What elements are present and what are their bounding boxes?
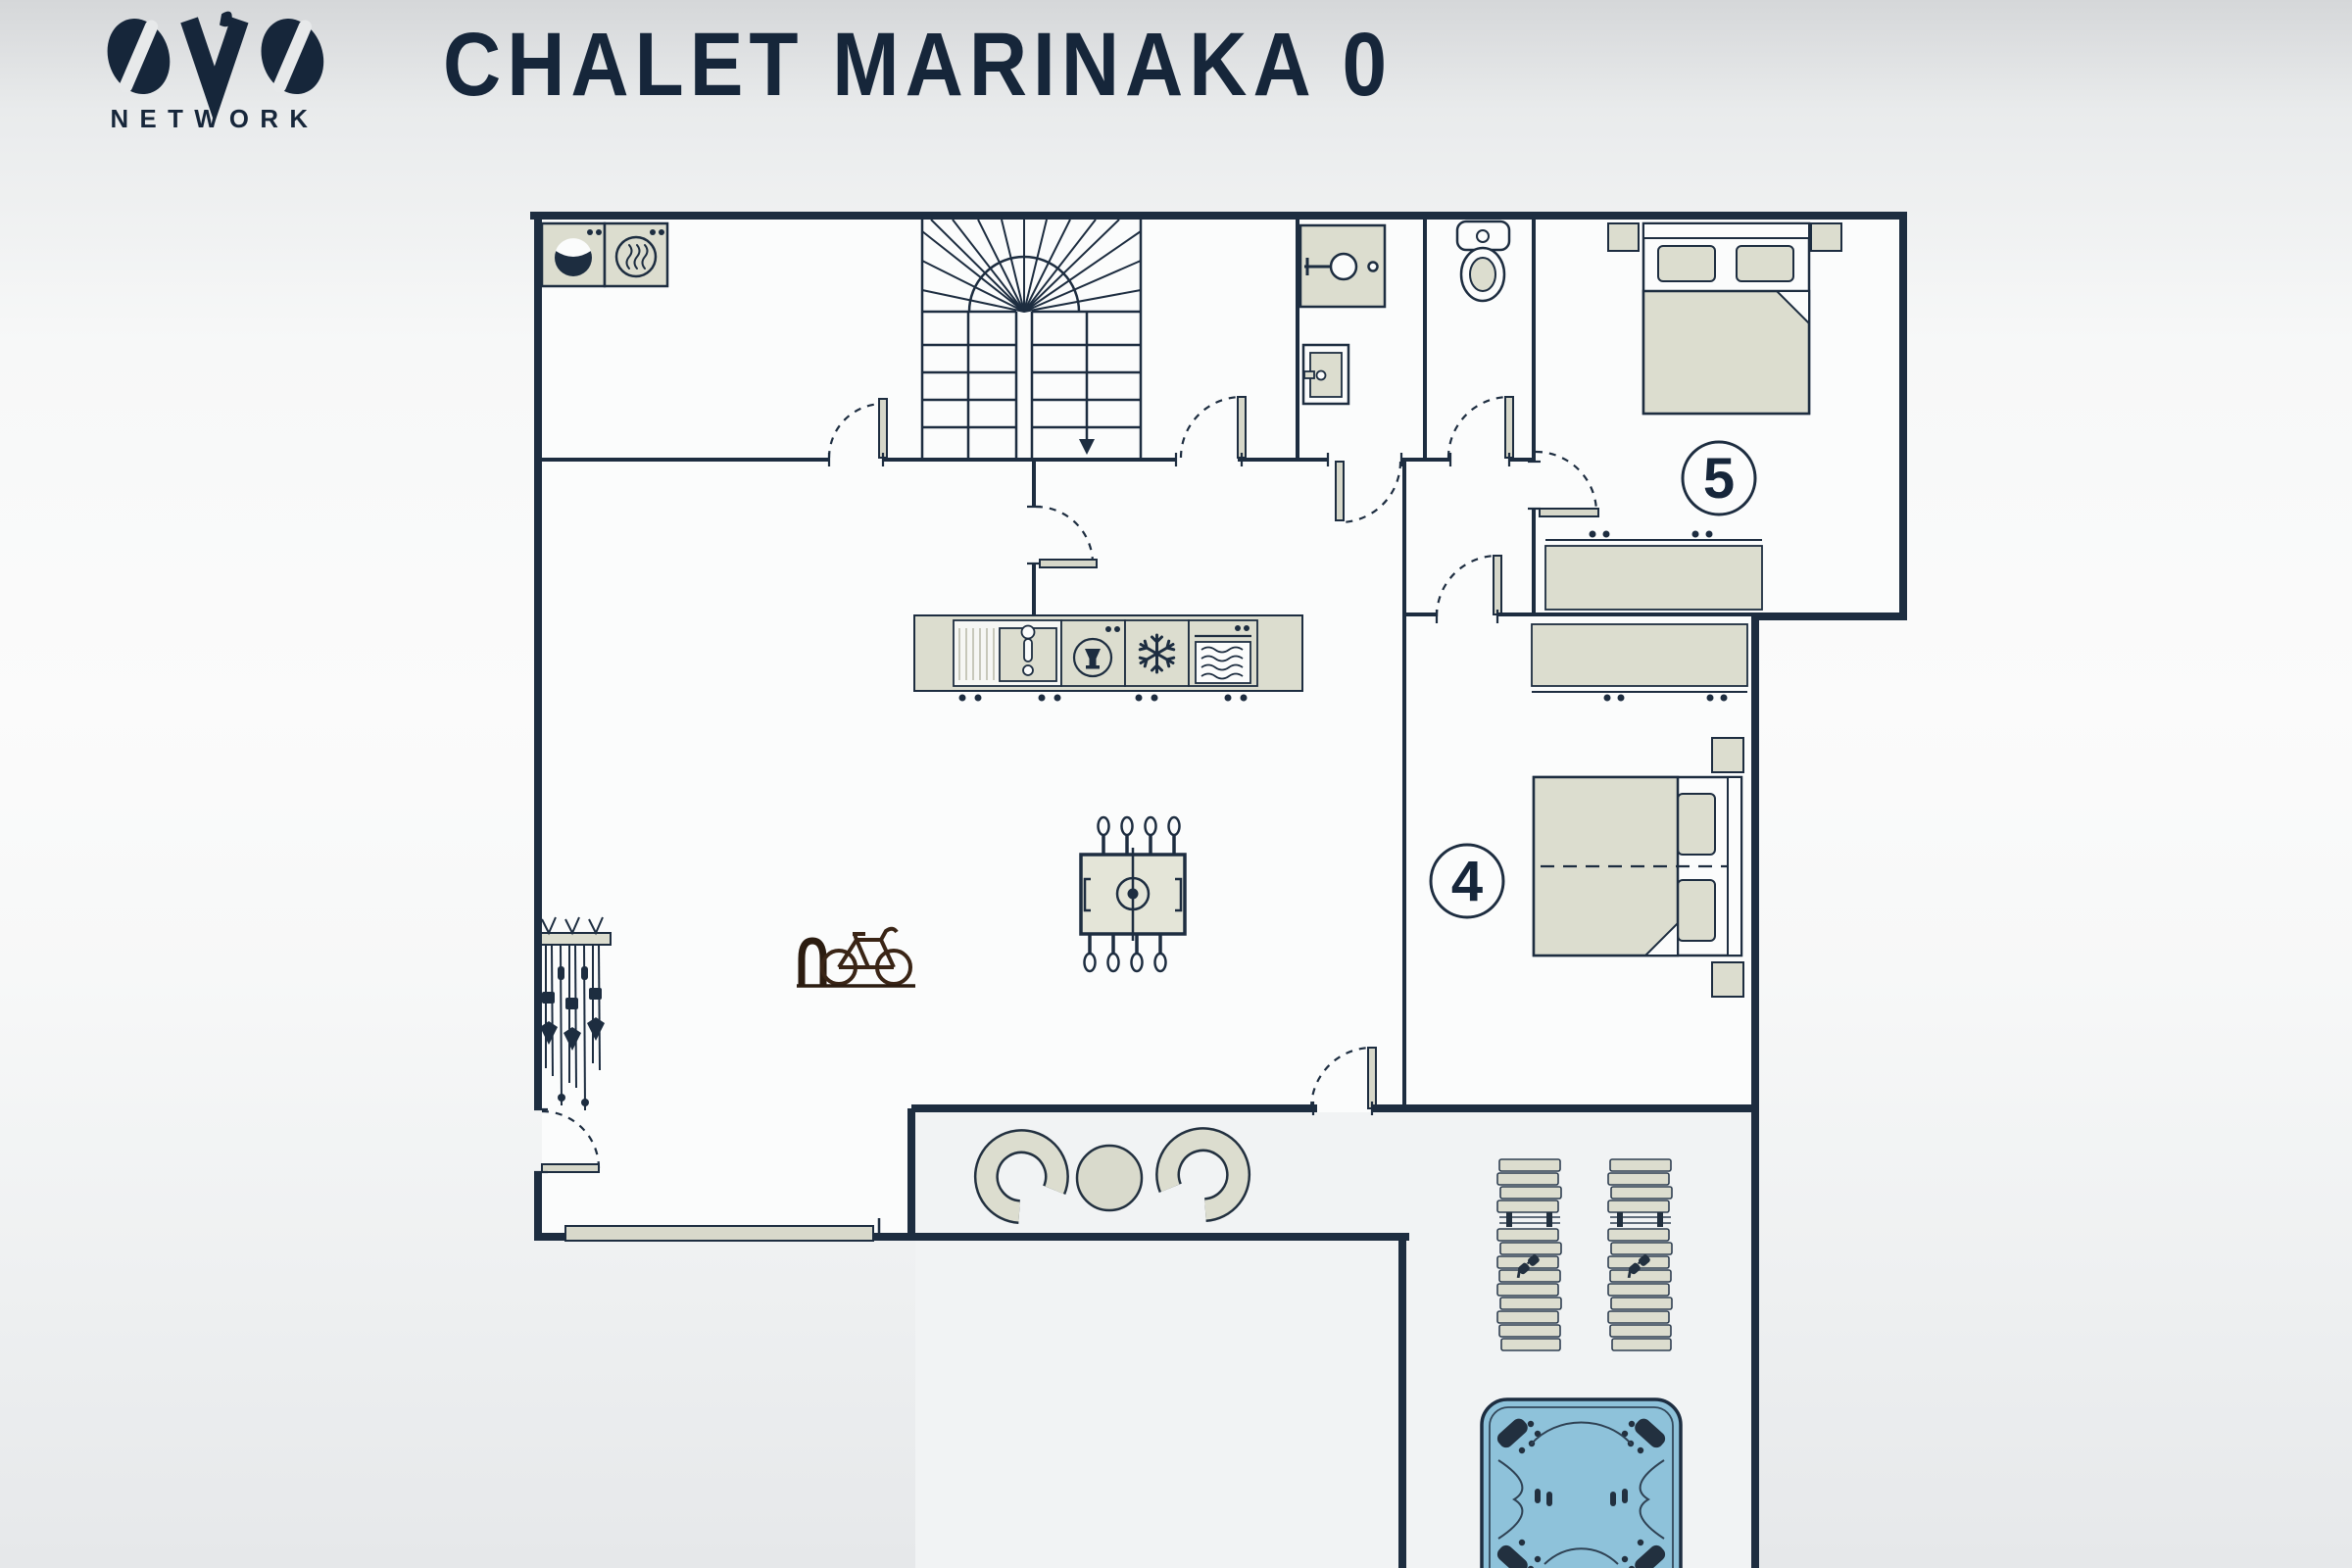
page: NETWORK CHALET MARINAKA 0 bbox=[0, 0, 2352, 1568]
round-table-icon bbox=[1077, 1146, 1142, 1210]
sun-lounger-icon bbox=[1608, 1159, 1672, 1350]
tumble-dryer-icon bbox=[605, 223, 667, 286]
room-number: 4 bbox=[1451, 850, 1483, 913]
sun-lounger-icon bbox=[1497, 1159, 1561, 1350]
nightstand bbox=[1811, 223, 1841, 251]
nightstand bbox=[1712, 962, 1743, 997]
floor-plan: 5 4 bbox=[0, 0, 2352, 1568]
kitchen-counter bbox=[914, 615, 1302, 702]
double-bed-icon bbox=[1534, 777, 1741, 955]
double-bed-icon bbox=[1643, 223, 1809, 414]
room-number-badge: 4 bbox=[1431, 845, 1503, 917]
shower-icon bbox=[1300, 225, 1385, 307]
dishwasher-icon bbox=[1061, 620, 1125, 686]
bathroom-sink-icon bbox=[1303, 345, 1348, 404]
kitchen-sink-icon bbox=[954, 620, 1061, 686]
oven-icon bbox=[1189, 620, 1257, 686]
room-number: 5 bbox=[1703, 447, 1735, 511]
washing-machine-icon bbox=[542, 223, 605, 286]
nightstand bbox=[1608, 223, 1639, 251]
freezer-icon bbox=[1125, 620, 1189, 686]
nightstand bbox=[1712, 738, 1743, 772]
hot-tub-icon bbox=[1482, 1399, 1681, 1568]
room-number-badge: 5 bbox=[1683, 442, 1755, 514]
toilet-icon bbox=[1457, 221, 1509, 301]
